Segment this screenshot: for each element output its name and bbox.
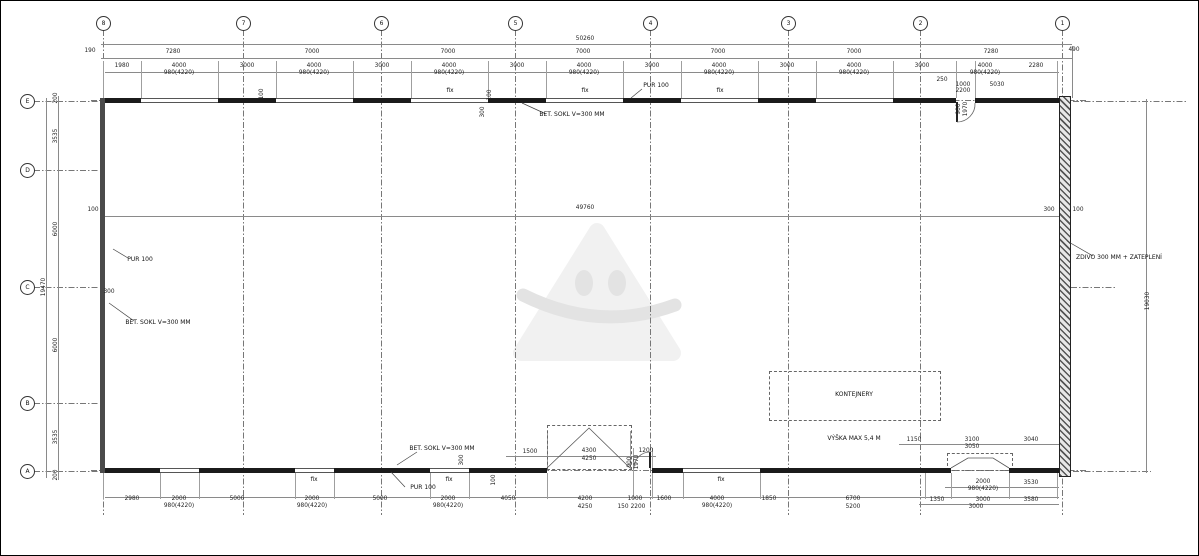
dimension-label: 2200	[956, 89, 971, 95]
dimension-label: 7000	[441, 50, 456, 56]
extension-line	[925, 473, 926, 499]
wall-pier-top	[101, 98, 141, 103]
fix-glazing-label: fix	[446, 89, 453, 95]
grid-line-extension	[1073, 471, 1151, 472]
fix-glazing-label: fix	[581, 89, 588, 95]
extension-line	[295, 473, 296, 499]
dimension-label: 200	[54, 469, 60, 480]
dimension-label: 100	[260, 88, 266, 99]
dimension-label: 980(4220)	[297, 504, 327, 510]
dimension-label: 4000	[307, 64, 322, 70]
dimension-label: 5200	[846, 505, 861, 511]
dimension-label: 4300	[582, 449, 597, 455]
dimension-label: 3000	[976, 498, 991, 504]
fix-glazing-label: fix	[310, 478, 317, 484]
dimension-label: 250	[936, 78, 947, 84]
window-fix-top	[276, 98, 353, 103]
dimension-label: 3000	[240, 64, 255, 70]
extension-line	[547, 473, 548, 499]
grid-line-extension	[1071, 287, 1117, 288]
dimension-label: 19470	[42, 278, 48, 296]
window-fix-top	[816, 98, 893, 103]
dimension-label: 7000	[711, 50, 726, 56]
dashed-outline-box	[947, 453, 1013, 471]
dimension-label: 980(4220)	[433, 504, 463, 510]
dimension-label: 3000	[510, 64, 525, 70]
dimension-label: 4200	[578, 497, 593, 503]
dimension-label: 7000	[576, 50, 591, 56]
dimension-label: 3040	[1024, 438, 1039, 444]
dimension-label: 4000	[172, 64, 187, 70]
window-fix-top	[411, 98, 488, 103]
window-fix-top	[141, 98, 218, 103]
dimension-label: 900	[628, 456, 634, 467]
wall-left	[100, 98, 105, 473]
dimension-label: 2000	[976, 480, 991, 486]
wall-pier-bottom	[101, 468, 160, 473]
dimension-line	[101, 216, 1059, 217]
extension-line	[1009, 473, 1010, 499]
grid-bubble-row-A: A	[20, 464, 35, 479]
dimension-label: 2000	[172, 497, 187, 503]
dimension-label: 2980	[125, 497, 140, 503]
dimension-label: 2000	[305, 497, 320, 503]
dimension-line	[919, 504, 1059, 505]
dimension-label: 3000	[969, 505, 984, 511]
dimension-label: 4000	[710, 497, 725, 503]
dimension-label: 1350	[930, 498, 945, 504]
extension-line	[1057, 473, 1058, 499]
dimension-label: 4000	[442, 64, 457, 70]
extension-line	[816, 61, 817, 98]
dimension-label: 150	[617, 505, 628, 511]
window-fix-top	[546, 98, 623, 103]
dimension-label: 1970	[635, 455, 641, 470]
dimension-label: 980(4220)	[704, 71, 734, 77]
dimension-label: 6700	[846, 497, 861, 503]
extension-line	[353, 61, 354, 98]
dimension-label: 49760	[576, 206, 594, 212]
extension-line	[334, 473, 335, 499]
dimension-label: 980(4220)	[164, 71, 194, 77]
dimension-label: 980(4220)	[299, 71, 329, 77]
dimension-label: 3050	[965, 445, 980, 451]
extension-line	[546, 61, 547, 98]
dimension-label: 1600	[657, 497, 672, 503]
dimension-label: 4000	[978, 64, 993, 70]
dimension-label: 190	[84, 49, 95, 55]
dimension-label: 980(4220)	[569, 71, 599, 77]
dimension-label: 1850	[762, 497, 777, 503]
dimension-label: 4250	[582, 457, 597, 463]
dimension-label: 1970	[964, 102, 970, 117]
window-fix-bottom	[430, 468, 469, 473]
extension-line	[103, 61, 104, 98]
grid-bubble-row-D: D	[20, 163, 35, 178]
dimension-label: 3000	[645, 64, 660, 70]
dimension-label: 200	[54, 92, 60, 103]
dimension-label: 19030	[1146, 292, 1152, 310]
grid-bubble-column-3: 3	[781, 16, 796, 31]
annotation-label: KONTEJNERY	[835, 392, 873, 398]
dimension-label: 7280	[984, 50, 999, 56]
wall-pier-bottom	[469, 468, 547, 473]
dimension-label: 5030	[990, 83, 1005, 89]
extension-line	[760, 473, 761, 499]
window-fix-bottom	[295, 468, 334, 473]
extension-line	[141, 61, 142, 98]
dimension-label: 980(4220)	[434, 71, 464, 77]
extension-line	[893, 61, 894, 98]
extension-line	[469, 473, 470, 499]
dimension-label: 1150	[907, 438, 922, 444]
extension-line	[683, 473, 684, 499]
dimension-label: 2280	[1029, 64, 1044, 70]
floor-plan-sheet: 87654321EDCBA502601907280700070007000700…	[0, 0, 1199, 556]
wall-pier-top	[758, 98, 816, 103]
grid-line-row-A	[34, 471, 99, 472]
dimension-label: 50260	[576, 37, 594, 43]
dimension-label: 900	[957, 103, 963, 114]
fix-glazing-label: fix	[716, 89, 723, 95]
wall-pier-top	[353, 98, 411, 103]
wall-right-masonry	[1059, 96, 1071, 477]
grid-line-row-E	[34, 101, 99, 102]
annotation-label: BET. SOKL V=300 MM	[539, 112, 604, 118]
extension-line	[160, 473, 161, 499]
dimension-label: 100	[488, 89, 494, 100]
dimension-label: 4050	[501, 497, 516, 503]
window-fix-top	[681, 98, 758, 103]
extension-line	[951, 473, 952, 499]
fix-glazing-label: fix	[717, 478, 724, 484]
dimension-label: 5000	[230, 497, 245, 503]
dimension-label: 1500	[523, 450, 538, 456]
window-fix-bottom	[160, 468, 199, 473]
dimension-label: 300	[481, 106, 487, 117]
dimension-label: 7000	[847, 50, 862, 56]
annotation-label: BET. SOKL V=300 MM	[409, 446, 474, 452]
grid-bubble-column-5: 5	[508, 16, 523, 31]
dimension-line	[58, 96, 59, 480]
extension-line	[199, 473, 200, 499]
dimension-label: 3580	[1024, 498, 1039, 504]
dimension-label: 4000	[847, 64, 862, 70]
annotation-label: PUR 100	[643, 83, 669, 89]
dimension-label: 2200	[631, 505, 646, 511]
grid-line-row-D	[34, 170, 99, 171]
extension-line	[652, 448, 653, 498]
wall-pier-top	[893, 98, 956, 103]
grid-bubble-column-4: 4	[643, 16, 658, 31]
extension-line	[681, 61, 682, 98]
grid-bubble-row-B: B	[20, 396, 35, 411]
dimension-label: 4000	[577, 64, 592, 70]
annotation-label: ZDIVO 300 MM + ZATEPLENÍ	[1076, 255, 1162, 261]
extension-line	[411, 61, 412, 98]
fix-glazing-label: fix	[445, 478, 452, 484]
dimension-label: 4250	[578, 505, 593, 511]
annotation-label: BET. SOKL V=300 MM	[125, 320, 190, 326]
grid-bubble-row-E: E	[20, 94, 35, 109]
dimension-label: 980(4220)	[839, 71, 869, 77]
dimension-label: 3535	[54, 129, 60, 144]
wall-pier-bottom	[1009, 468, 1059, 473]
dimension-label: 300	[460, 454, 466, 465]
dimension-line	[1146, 99, 1147, 473]
dimension-label: 300	[103, 290, 114, 296]
grid-line-row-B	[34, 403, 99, 404]
dimension-label: 5000	[373, 497, 388, 503]
dimension-label: 980(4220)	[702, 504, 732, 510]
extension-line	[975, 61, 976, 98]
dimension-line	[101, 58, 1072, 59]
extension-line	[758, 61, 759, 98]
grid-bubble-column-2: 2	[913, 16, 928, 31]
annotation-label: PUR 100	[410, 485, 436, 491]
dimension-label: 100	[492, 474, 498, 485]
extension-line	[1057, 61, 1058, 98]
dimension-label: 100	[1072, 208, 1083, 214]
dimension-label: 3000	[375, 64, 390, 70]
dimension-label: 100	[87, 208, 98, 214]
wall-pier-top	[623, 98, 681, 103]
dimension-line	[101, 44, 1072, 45]
wall-pier-top	[488, 98, 546, 103]
dimension-label: 3000	[915, 64, 930, 70]
dimension-label: 2000	[441, 497, 456, 503]
dimension-label: 4000	[712, 64, 727, 70]
dimension-label: 6000	[54, 338, 60, 353]
dimension-line	[945, 487, 1059, 488]
annotation-label: VÝŠKA MAX 5,4 M	[827, 436, 880, 442]
wall-pier-bottom	[334, 468, 430, 473]
wall-pier-bottom	[652, 468, 683, 473]
dimension-label: 490	[1068, 48, 1079, 54]
grid-line-extension	[1073, 101, 1187, 102]
grid-bubble-column-6: 6	[374, 16, 389, 31]
extension-line	[623, 61, 624, 98]
dimension-label: 1000	[628, 497, 643, 503]
wall-pier-top	[218, 98, 276, 103]
grid-bubble-row-C: C	[20, 280, 35, 295]
dimension-label: 980(4220)	[164, 504, 194, 510]
dimension-label: 3100	[965, 438, 980, 444]
dimension-label: 7280	[166, 50, 181, 56]
wall-pier-bottom	[199, 468, 295, 473]
annotation-label: PUR 100	[127, 257, 153, 263]
grid-bubble-column-7: 7	[236, 16, 251, 31]
extension-line	[218, 61, 219, 98]
dimension-label: 3000	[780, 64, 795, 70]
wall-pier-bottom	[760, 468, 951, 473]
wall-pier-top	[975, 98, 1059, 103]
dimension-label: 7000	[305, 50, 320, 56]
dimension-label: 3530	[1024, 481, 1039, 487]
grid-bubble-column-1: 1	[1055, 16, 1070, 31]
dimension-label: 1980	[115, 64, 130, 70]
extension-line	[276, 61, 277, 98]
dimension-label: 300	[1043, 208, 1054, 214]
dimension-label: 980(4220)	[970, 71, 1000, 77]
extension-line	[103, 473, 104, 499]
grid-bubble-column-8: 8	[96, 16, 111, 31]
dimension-label: 6000	[54, 222, 60, 237]
dimension-label: 3535	[54, 430, 60, 445]
dimension-label: 980(4220)	[968, 487, 998, 493]
window-fix-bottom	[683, 468, 760, 473]
